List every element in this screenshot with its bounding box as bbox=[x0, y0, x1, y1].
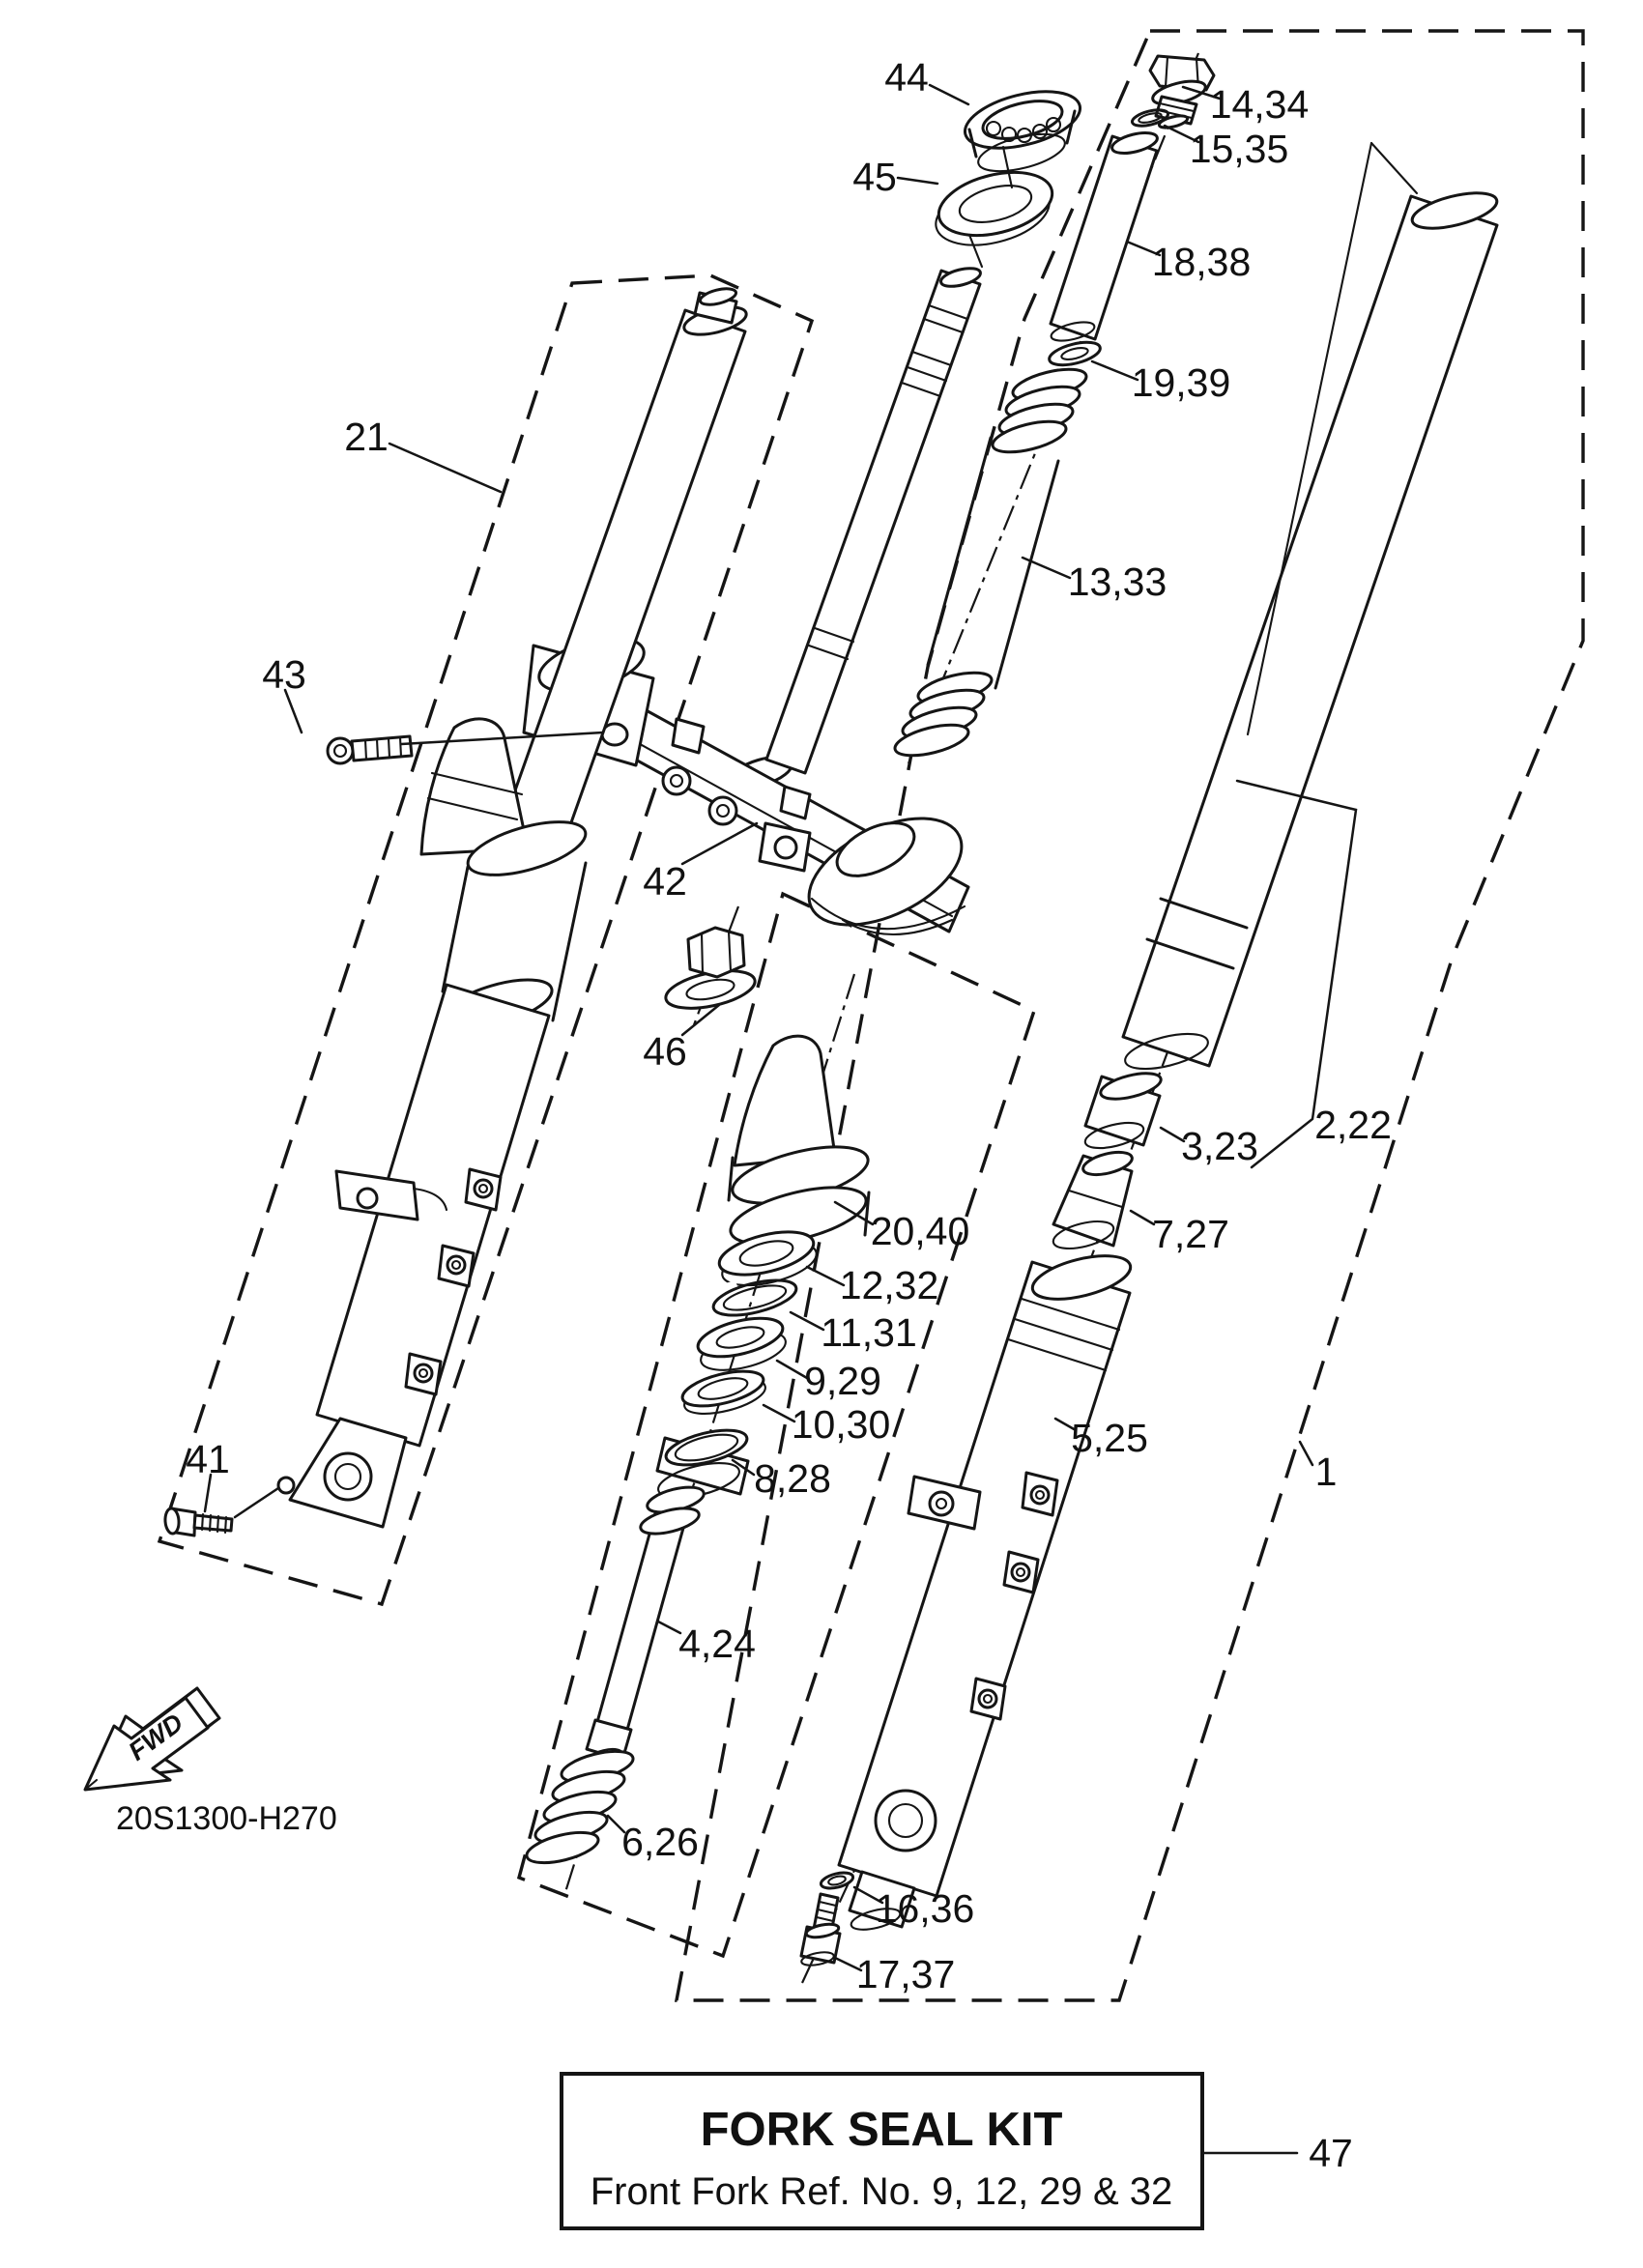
alignment-line-45-stem bbox=[969, 235, 982, 267]
callout-4-24: 4,24 bbox=[678, 1622, 756, 1666]
callout-14-34: 14,34 bbox=[1210, 82, 1310, 127]
callout-8-28: 8,28 bbox=[754, 1456, 831, 1501]
callout-41: 41 bbox=[186, 1437, 230, 1481]
seal-washer2-part bbox=[679, 1364, 769, 1421]
callout-9-29: 9,29 bbox=[804, 1359, 881, 1403]
fork-exploded-diagram: 44 45 14,34 15,35 18,38 19,39 13,33 21 4… bbox=[0, 0, 1643, 2268]
callout-15-35: 15,35 bbox=[1190, 127, 1289, 171]
callout-19-39: 19,39 bbox=[1132, 360, 1231, 405]
oil-seal-part bbox=[694, 1311, 790, 1378]
callout-10-30: 10,30 bbox=[792, 1402, 891, 1447]
callout-1: 1 bbox=[1315, 1450, 1338, 1494]
oil-lock-piece-part bbox=[1051, 1148, 1135, 1253]
rebound-spring-part bbox=[524, 1745, 636, 1869]
bearing-race-part bbox=[960, 81, 1086, 179]
pinch-bolt-upper-part bbox=[328, 736, 412, 763]
fwd-arrow: FWD bbox=[85, 1688, 219, 1790]
spacer-tube-part bbox=[1050, 129, 1160, 344]
center-axis-lines bbox=[565, 53, 1198, 1983]
stem-nut-part bbox=[662, 928, 758, 1015]
callout-3-23: 3,23 bbox=[1181, 1124, 1258, 1168]
drawing-code: 20S1300-H270 bbox=[116, 1800, 337, 1837]
pinch-bolt-lower-part bbox=[164, 1508, 232, 1536]
kit-box-title: FORK SEAL KIT bbox=[701, 2104, 1063, 2156]
callout-18-38: 18,38 bbox=[1152, 240, 1252, 284]
slide-metal-part bbox=[1082, 1069, 1163, 1154]
callout-2-22: 2,22 bbox=[1314, 1103, 1392, 1147]
callout-16-36: 16,36 bbox=[876, 1886, 975, 1931]
callout-43: 43 bbox=[262, 652, 306, 697]
damper-bolt-part bbox=[800, 1894, 840, 1967]
callout-11-31: 11,31 bbox=[821, 1310, 917, 1355]
fork-seal-kit-box: FORK SEAL KIT Front Fork Ref. No. 9, 12,… bbox=[562, 2074, 1353, 2228]
callout-42: 42 bbox=[643, 859, 687, 904]
callout-21: 21 bbox=[344, 415, 389, 459]
callout-17-37: 17,37 bbox=[856, 1952, 956, 1996]
callout-45: 45 bbox=[852, 155, 897, 199]
spring-seat-washer-part bbox=[1047, 338, 1102, 369]
retaining-clip-part bbox=[710, 1274, 800, 1322]
left-fork-assembly bbox=[278, 286, 749, 1527]
callout-20-40: 20,40 bbox=[871, 1209, 970, 1253]
callout-46: 46 bbox=[643, 1029, 687, 1074]
callout-47: 47 bbox=[1309, 2131, 1353, 2175]
callout-6-26: 6,26 bbox=[621, 1820, 699, 1864]
damper-washer-part bbox=[820, 1870, 854, 1891]
parts-diagram-page: 44 45 14,34 15,35 18,38 19,39 13,33 21 4… bbox=[0, 0, 1643, 2268]
callout-7-27: 7,27 bbox=[1152, 1212, 1229, 1256]
kit-box-subtitle: Front Fork Ref. No. 9, 12, 29 & 32 bbox=[591, 2170, 1173, 2213]
seal-washer-part bbox=[930, 161, 1059, 255]
callout-13-33: 13,33 bbox=[1068, 560, 1167, 604]
callout-12-32: 12,32 bbox=[840, 1263, 939, 1307]
callout-5-25: 5,25 bbox=[1071, 1416, 1148, 1460]
callout-44: 44 bbox=[884, 55, 929, 100]
